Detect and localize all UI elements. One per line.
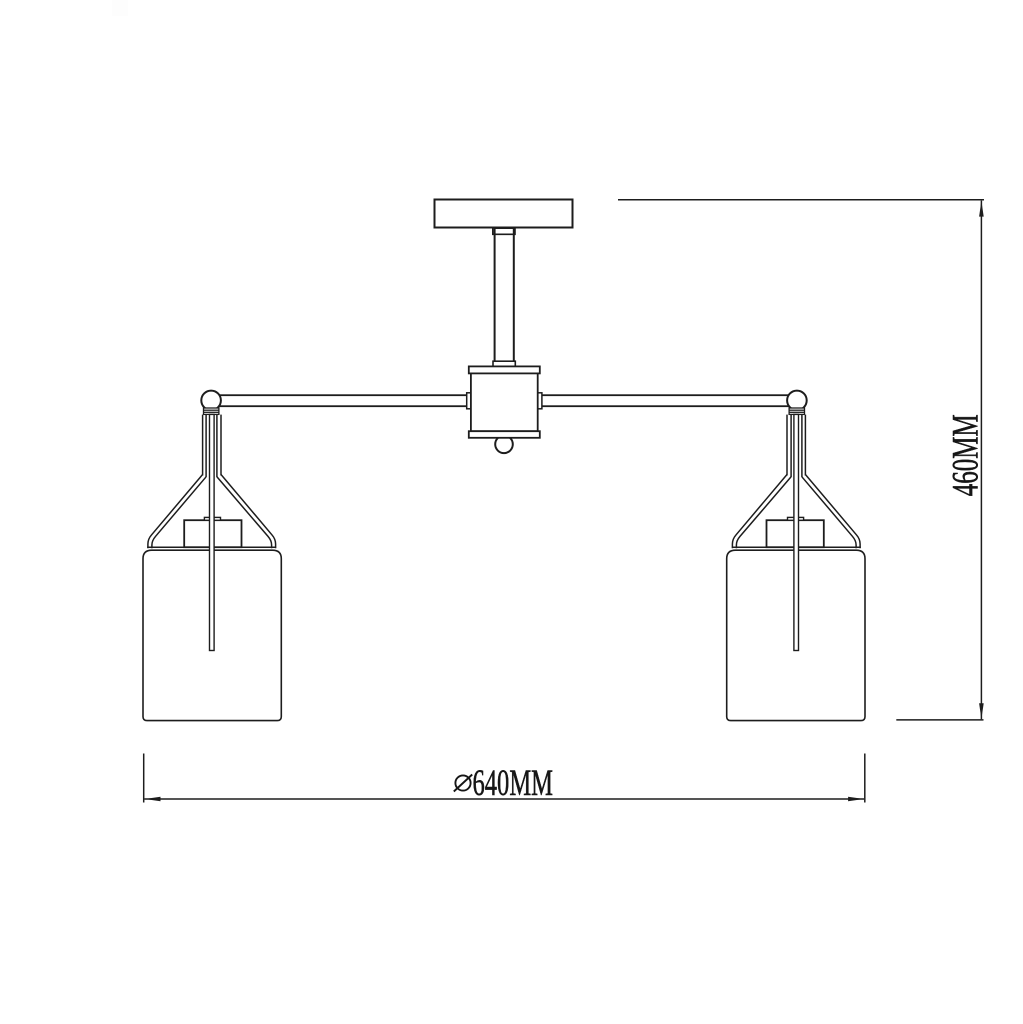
svg-text:640MM: 640MM [473, 763, 554, 804]
svg-text:460MM: 460MM [945, 414, 986, 496]
